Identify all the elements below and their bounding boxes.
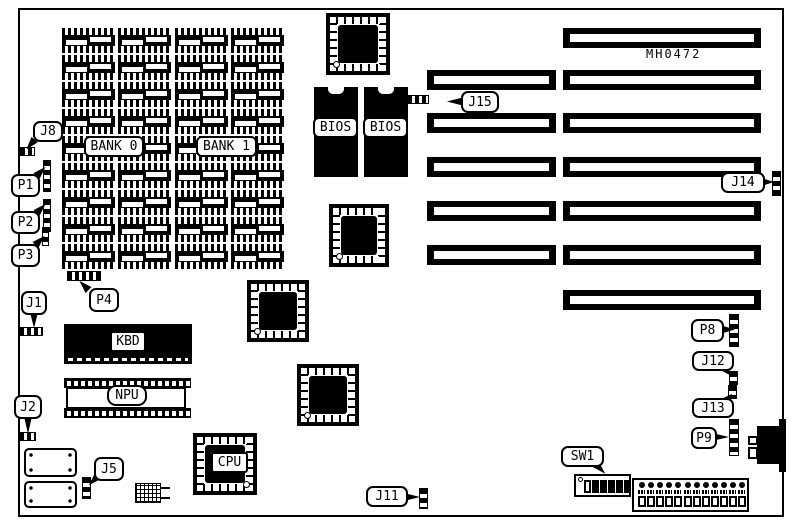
ram-chip (62, 82, 115, 107)
callout-p1: P1 (11, 174, 40, 197)
callout-j1: J1 (21, 291, 47, 315)
motherboard-diagram: MH0472 BANK 0 BANK 1 CPU BIOS BIOS KBD N… (0, 0, 791, 527)
dip-switch-position (616, 480, 623, 493)
ram-chip (118, 244, 171, 269)
power-pin-base (702, 490, 709, 494)
ram-chip (231, 190, 284, 215)
power-pin-base (711, 490, 718, 494)
oscillator-1 (24, 448, 77, 477)
bios1-label: BIOS (313, 117, 358, 138)
power-pin-hole (702, 496, 710, 507)
dip-switch-position (608, 480, 615, 493)
dip-pin1-mark (578, 477, 583, 482)
ram-chip (175, 55, 228, 80)
power-pin-base (674, 490, 681, 494)
power-pin-hole (665, 496, 673, 507)
bank1-label: BANK 1 (196, 136, 257, 157)
callout-p2: P2 (11, 211, 40, 234)
ram-chip (62, 244, 115, 269)
power-pin-hole (647, 496, 655, 507)
ram-chip (118, 163, 171, 188)
crystal-lead (161, 497, 170, 499)
isa-slot-long (563, 113, 761, 133)
callout-sw1: SW1 (561, 446, 604, 467)
power-pin (730, 482, 736, 488)
din-tab (748, 447, 758, 459)
callout-j11: J11 (366, 486, 408, 507)
crystal-lead (161, 487, 170, 489)
isa-slot-long (563, 201, 761, 221)
power-pin-hole (711, 496, 719, 507)
ram-chip (62, 28, 115, 53)
ram-chip (231, 244, 284, 269)
ram-chip (118, 217, 171, 242)
isa-slot-long (563, 70, 761, 90)
cpu-label: CPU (211, 452, 248, 473)
pin1-dot (254, 328, 261, 335)
callout-p9: P9 (691, 427, 717, 449)
ram-chip (62, 55, 115, 80)
connector-p1 (43, 160, 51, 192)
dip-switch-position (584, 480, 591, 493)
power-pin (639, 482, 645, 488)
ram-chip (231, 109, 284, 134)
callout-j5: J5 (94, 457, 124, 481)
power-pin (648, 482, 654, 488)
isa-slot-short (427, 245, 556, 265)
ram-chip (175, 28, 228, 53)
ram-chip (231, 217, 284, 242)
power-pin-hole (684, 496, 692, 507)
isa-slot-short (427, 70, 556, 90)
plcc-chip-2 (329, 204, 389, 267)
plcc-chip-4 (297, 364, 359, 426)
power-pin (703, 482, 709, 488)
ram-chip (118, 55, 171, 80)
ram-chip (62, 109, 115, 134)
pin1-dot (304, 412, 311, 419)
ram-chip (231, 55, 284, 80)
plcc-die (341, 216, 377, 255)
callout-j15: J15 (461, 91, 499, 113)
power-pin-hole (729, 496, 737, 507)
ram-chip (118, 28, 171, 53)
dip-switch-position (592, 480, 599, 493)
connector-p3 (42, 227, 49, 246)
connector-j2 (19, 432, 36, 441)
ram-chip (118, 82, 171, 107)
power-pin-base (647, 490, 654, 494)
ram-chip (175, 244, 228, 269)
ram-chip (231, 28, 284, 53)
power-pin-hole (693, 496, 701, 507)
callout-p3: P3 (11, 244, 40, 267)
power-pin (666, 482, 672, 488)
power-pin-base (693, 490, 700, 494)
ram-chip (62, 190, 115, 215)
oscillator-2 (24, 481, 77, 508)
callout-j2: J2 (14, 395, 42, 419)
power-pin (694, 482, 700, 488)
callout-j8: J8 (33, 121, 63, 142)
ram-chip (175, 163, 228, 188)
dip-switch-position (600, 480, 607, 493)
power-pin-hole (674, 496, 682, 507)
ram-chip (175, 217, 228, 242)
connector-j1 (19, 327, 43, 336)
callout-j13: J13 (692, 398, 734, 418)
ram-chip (62, 163, 115, 188)
ram-chip (118, 190, 171, 215)
connector-j5 (82, 477, 91, 499)
power-pin-hole (638, 496, 646, 507)
crystal (135, 483, 161, 503)
power-pin-base (665, 490, 672, 494)
power-pin (739, 482, 745, 488)
callout-p8: P8 (691, 319, 724, 342)
ram-chip (231, 82, 284, 107)
connector-j15 (407, 95, 429, 104)
isa-slot-long (563, 290, 761, 310)
power-pin (721, 482, 727, 488)
plcc-chip-1 (326, 13, 390, 75)
din-tab (748, 436, 758, 445)
plcc-die (309, 376, 347, 414)
power-pin (657, 482, 663, 488)
power-pin-base (656, 490, 663, 494)
isa-slot-long (563, 28, 761, 48)
connector-j11 (419, 488, 428, 509)
power-pin (712, 482, 718, 488)
plcc-die (259, 292, 297, 330)
connector-p9 (729, 419, 739, 456)
dip-switch-position (624, 480, 631, 493)
isa-slot-short (427, 201, 556, 221)
isa-slot-long (563, 245, 761, 265)
power-pin-base (738, 490, 745, 494)
connector-j14 (772, 171, 781, 196)
power-pin (675, 482, 681, 488)
power-connector (632, 478, 749, 512)
dip-switch-sw1 (574, 474, 631, 497)
keyboard-din-connector-flange (779, 419, 786, 472)
ram-chip (175, 109, 228, 134)
callout-p4: P4 (89, 288, 119, 312)
pin1-dot (243, 481, 250, 488)
bank0-label: BANK 0 (84, 136, 144, 157)
callout-j12: J12 (692, 351, 734, 371)
power-pin-base (729, 490, 736, 494)
ram-chip (231, 163, 284, 188)
part-number: MH0472 (646, 47, 701, 61)
kbd-label: KBD (110, 331, 146, 352)
npu-label: NPU (107, 385, 147, 406)
power-pin-base (684, 490, 691, 494)
isa-slot-short (427, 157, 556, 177)
ram-chip (175, 82, 228, 107)
power-pin-hole (738, 496, 746, 507)
power-pin-base (638, 490, 645, 494)
ram-chip (175, 190, 228, 215)
power-pin-base (720, 490, 727, 494)
power-pin-hole (720, 496, 728, 507)
bios2-label: BIOS (363, 117, 408, 138)
ram-chip (118, 109, 171, 134)
power-pin-hole (656, 496, 664, 507)
power-pin (685, 482, 691, 488)
callout-j14: J14 (721, 172, 765, 193)
pin1-dot (336, 253, 343, 260)
ram-chip (62, 217, 115, 242)
connector-p4 (67, 271, 101, 281)
pin1-dot (333, 61, 340, 68)
plcc-chip-3 (247, 280, 309, 342)
isa-slot-short (427, 113, 556, 133)
plcc-die (338, 25, 378, 63)
